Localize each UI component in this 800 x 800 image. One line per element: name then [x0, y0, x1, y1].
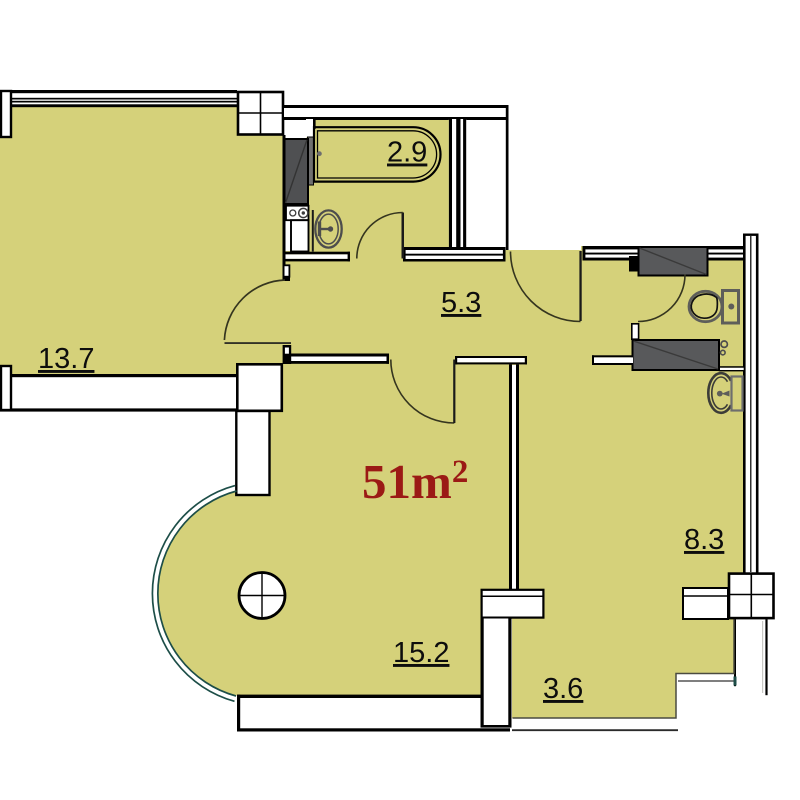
svg-text:13.7: 13.7 [38, 343, 94, 375]
svg-text:2.9: 2.9 [387, 137, 427, 169]
svg-text:8.3: 8.3 [684, 524, 724, 556]
svg-text:15.2: 15.2 [393, 637, 449, 669]
svg-text:3.6: 3.6 [543, 673, 583, 705]
svg-text:5.3: 5.3 [441, 287, 481, 319]
